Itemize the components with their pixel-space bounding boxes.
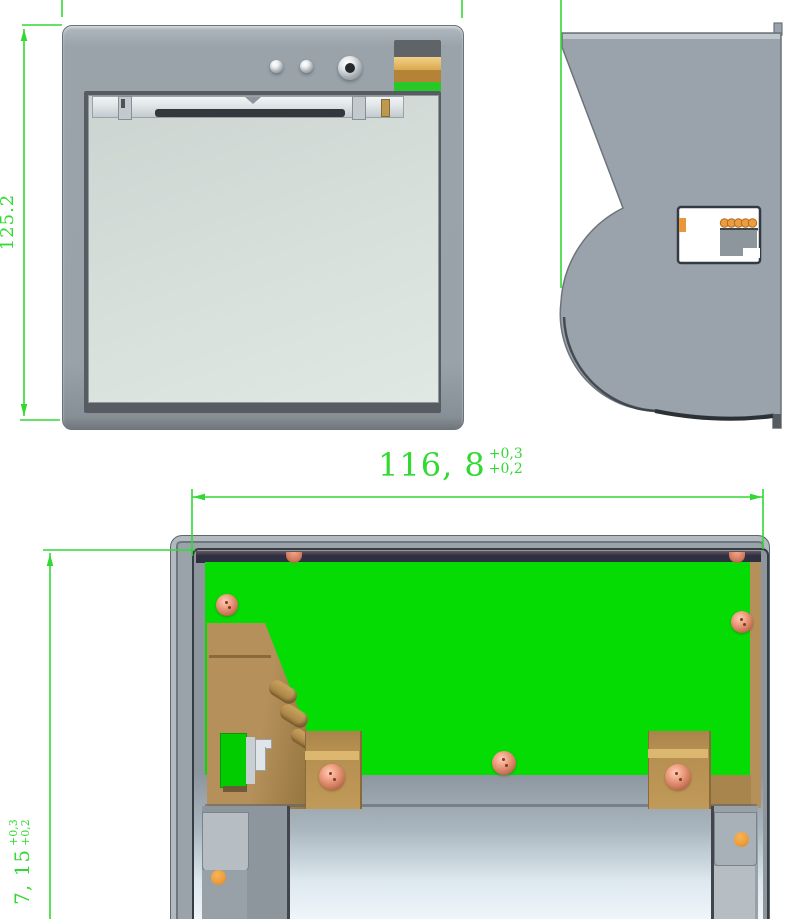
dim-depth-tol-lower: +0,2 <box>20 819 32 846</box>
side-view <box>555 20 787 432</box>
interface-notch <box>743 248 760 258</box>
interface-pin-left <box>679 218 686 232</box>
mechanism-connector-latch-side <box>255 747 266 771</box>
dim-width-tol-upper: +0,3 <box>489 447 523 462</box>
mechanism-groove <box>209 655 271 658</box>
screw-bracket-right <box>665 764 691 790</box>
front-connector-housing <box>394 40 441 57</box>
status-led-1 <box>270 60 283 73</box>
roller-leg-right-edge <box>711 806 714 919</box>
screw-center <box>492 751 516 775</box>
dim-width-tol-lower: +0,2 <box>489 462 523 477</box>
roller-leg-right-lower <box>714 866 755 919</box>
roller-leg-left-edge <box>287 806 290 919</box>
chassis-strip-right <box>750 562 761 808</box>
roller-pin-right <box>734 832 749 847</box>
mount-bracket-left-band <box>305 751 359 760</box>
side-top-highlight <box>563 34 780 39</box>
drawing-canvas: 125.2 116, 8 +0,3 +0,2 7, 15 +0,3 +0,2 <box>0 0 790 919</box>
feed-button-core <box>345 63 355 73</box>
dim-depth-tol-upper: +0,3 <box>8 819 20 846</box>
dim-width-value: 116, 8 <box>378 449 486 481</box>
arrow-up-icon-2 <box>47 554 54 566</box>
arrow-down-icon <box>21 404 28 416</box>
screw-top-right <box>731 611 753 633</box>
front-connector-pcb-strip <box>394 82 441 91</box>
screw-bracket-left <box>319 764 345 790</box>
interface-coil-pins <box>720 219 756 227</box>
front-connector-gold-upper <box>394 57 441 70</box>
roller-pin-left <box>211 870 226 885</box>
side-bottom-tab <box>773 414 781 428</box>
arrow-left-icon <box>193 494 205 501</box>
dim-width-label: 116, 8 +0,3 +0,2 <box>378 449 523 481</box>
mechanism-slot <box>223 786 247 792</box>
dim-depth-tolerance: +0,3 +0,2 <box>8 819 31 846</box>
dim-width-tolerance: +0,3 +0,2 <box>489 447 523 476</box>
paper-exit-slot <box>155 109 345 117</box>
front-connector-gold-lower <box>394 70 441 82</box>
arrow-right-icon <box>750 494 762 501</box>
arrow-up-icon <box>21 29 28 41</box>
roller-leg-left-panel <box>202 812 249 872</box>
dim-height-label: 125.2 <box>0 187 19 257</box>
mechanism-connector <box>220 733 247 788</box>
door-clip-left-mark <box>121 99 125 108</box>
mechanism-connector-pin-strip <box>246 737 255 784</box>
dim-depth-value: 7, 15 <box>12 849 32 905</box>
chevron-down-icon <box>245 97 261 104</box>
front-door-panel <box>88 95 439 403</box>
mount-bracket-right-band <box>648 749 708 758</box>
status-led-2 <box>300 60 313 73</box>
screw-top-left <box>216 594 238 616</box>
door-latch-tab <box>381 99 390 117</box>
dim-depth-label: 7, 15 +0,3 +0,2 <box>7 807 37 917</box>
door-clip-right <box>352 96 366 120</box>
dim-height-value: 125.2 <box>0 194 18 251</box>
